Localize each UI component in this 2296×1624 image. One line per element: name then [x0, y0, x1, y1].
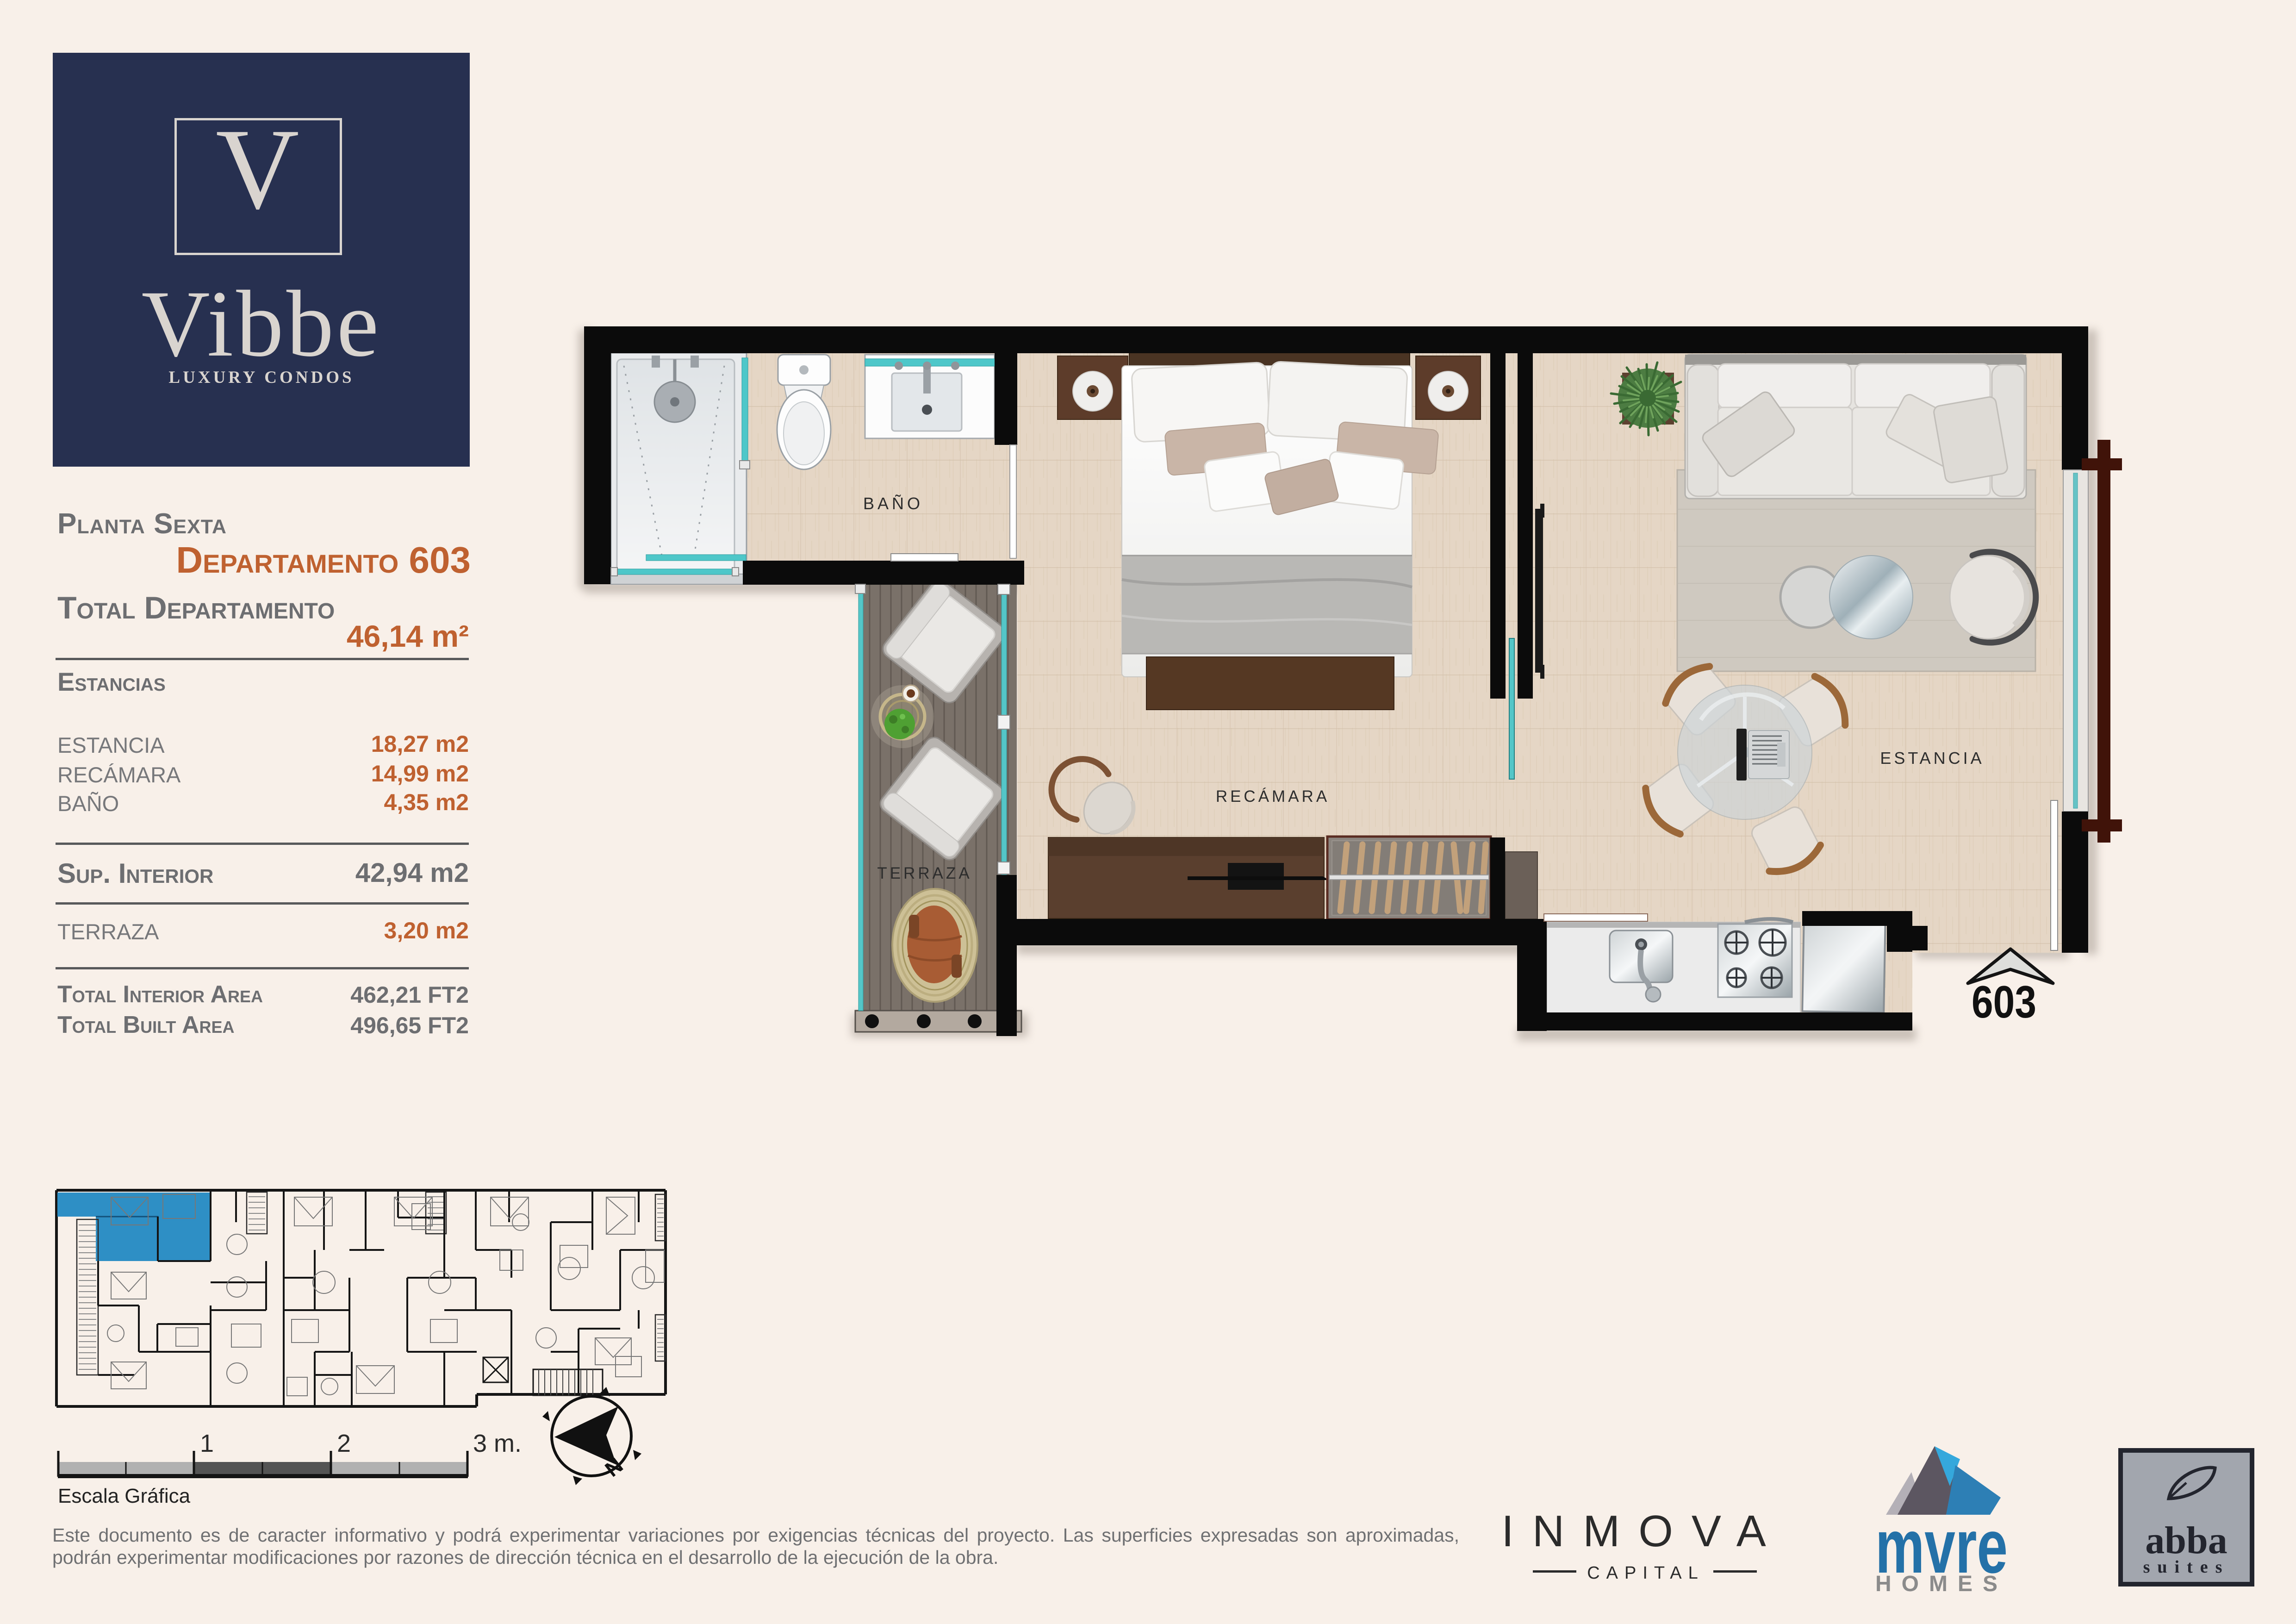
- svg-text:HOMES: HOMES: [1875, 1572, 2008, 1596]
- svg-text:INMOVA: INMOVA: [1504, 1506, 1785, 1556]
- svg-text:RECÁMARA: RECÁMARA: [1216, 787, 1330, 806]
- svg-text:BAÑO: BAÑO: [863, 494, 923, 513]
- svg-text:suites: suites: [2143, 1557, 2230, 1577]
- svg-text:ESTANCIA: ESTANCIA: [1880, 749, 1984, 768]
- svg-text:1: 1: [200, 1430, 214, 1457]
- svg-text:TERRAZA: TERRAZA: [877, 864, 972, 882]
- svg-text:Escala Gráfica: Escala Gráfica: [58, 1485, 191, 1507]
- svg-text:3 m.: 3 m.: [473, 1430, 522, 1457]
- svg-text:abba: abba: [2145, 1519, 2227, 1562]
- svg-text:2: 2: [337, 1430, 351, 1457]
- svg-text:603: 603: [1972, 976, 2036, 1027]
- svg-text:CAPITAL: CAPITAL: [1587, 1563, 1705, 1583]
